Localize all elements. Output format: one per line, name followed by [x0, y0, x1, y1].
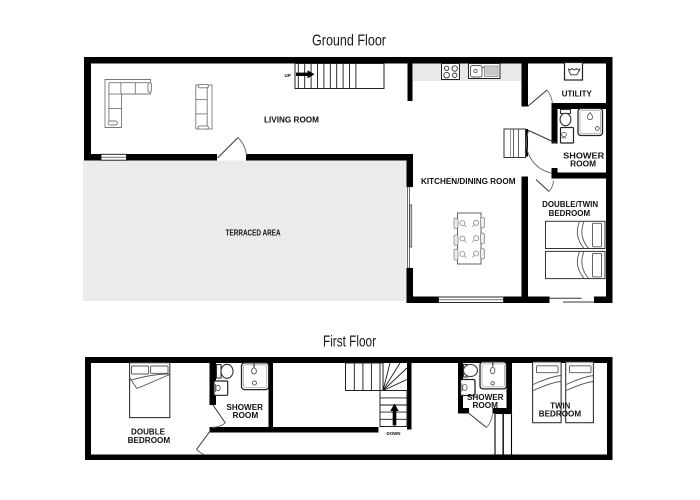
svg-text:DOWN: DOWN — [387, 431, 402, 436]
svg-text:BEDROOM: BEDROOM — [539, 408, 581, 418]
svg-text:ROOM: ROOM — [233, 410, 259, 420]
svg-text:Ground Floor: Ground Floor — [312, 33, 386, 50]
svg-text:UP: UP — [285, 73, 291, 78]
svg-text:LIVING ROOM: LIVING ROOM — [264, 115, 319, 125]
svg-text:ROOM: ROOM — [570, 158, 596, 168]
svg-text:ROOM: ROOM — [473, 400, 499, 410]
svg-text:UTILITY: UTILITY — [562, 89, 592, 99]
svg-text:TERRACED AREA: TERRACED AREA — [226, 228, 281, 237]
svg-text:BEDROOM: BEDROOM — [128, 435, 171, 445]
svg-text:KITCHEN/DINING ROOM: KITCHEN/DINING ROOM — [421, 176, 516, 186]
svg-text:First Floor: First Floor — [323, 334, 376, 351]
svg-text:BEDROOM: BEDROOM — [549, 208, 591, 218]
